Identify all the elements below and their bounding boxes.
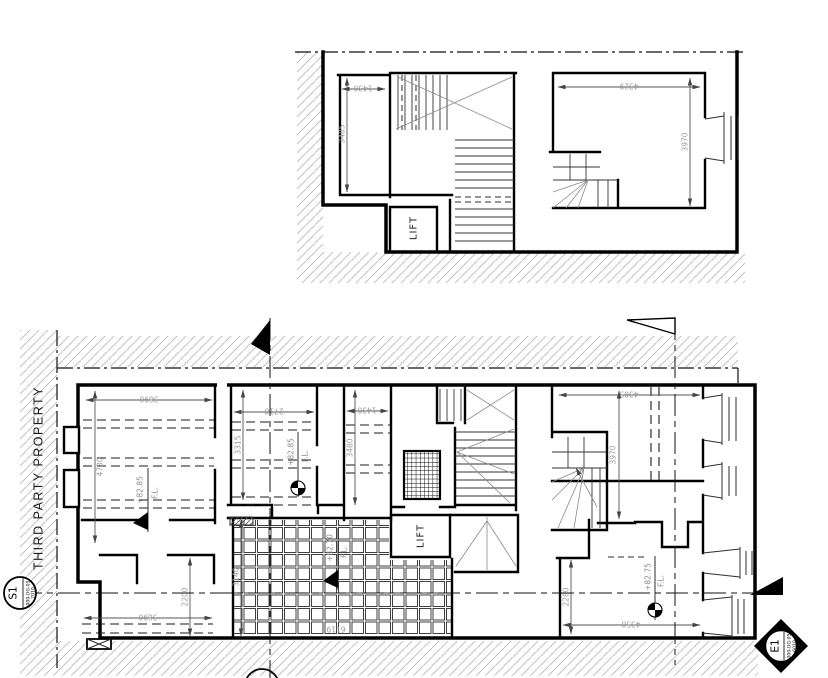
lintel-hatched-block xyxy=(230,517,253,525)
hatch-upper-bottom xyxy=(297,252,745,283)
marker-s1: S1 000-DG-05 7010 xyxy=(4,577,37,609)
hatch-lower-bottom xyxy=(57,641,758,676)
wall-opening xyxy=(217,381,227,389)
level-suffix: F.L. xyxy=(657,575,666,587)
level-benchmark-icon xyxy=(291,481,305,495)
level-suffix: F.L. xyxy=(340,546,349,558)
s1-sheet: 7010 xyxy=(31,587,37,599)
level-suffix: F.L. xyxy=(151,487,160,499)
floor-plan-drawing: LIFT 1430 3485 4329 3970 LIFT xyxy=(0,0,828,678)
dim-label: 3315 xyxy=(234,435,243,454)
level-value: +82.85 xyxy=(136,476,145,504)
pilaster xyxy=(64,470,79,507)
level-value: +82.85 xyxy=(287,438,296,466)
e1-code: 000-DG-05 xyxy=(787,633,793,658)
dim-label: 4329 xyxy=(619,81,638,90)
dim-label: 4730 xyxy=(96,457,105,476)
dim-label: 3690 xyxy=(138,612,157,621)
dim-label: 3480 xyxy=(346,438,355,457)
hatch-upper-left xyxy=(297,52,323,252)
lift-label: LIFT xyxy=(409,216,420,240)
dim-label: 3690 xyxy=(139,394,158,403)
dim-label: 3485 xyxy=(338,124,347,143)
dim-label: 2710 xyxy=(264,406,283,415)
pilaster xyxy=(64,427,79,453)
dim-label: 6119 xyxy=(326,624,345,633)
s1-label: S1 xyxy=(8,586,20,599)
dim-label: 3140 xyxy=(232,567,241,586)
lift-label: LIFT xyxy=(416,524,427,548)
dim-label: 3970 xyxy=(609,445,618,464)
e1-label: E1 xyxy=(770,639,782,652)
dim-label: 2200 xyxy=(181,587,190,606)
third-party-property-label: THIRD PARTY PROPERTY xyxy=(31,386,45,570)
e1-sheet: 6010 xyxy=(792,640,798,652)
dim-label: 1430 xyxy=(353,83,372,92)
dim-label: 4305 xyxy=(619,389,638,398)
dim-label: 1430 xyxy=(357,405,376,414)
level-benchmark-icon xyxy=(648,603,662,617)
hatch-lower-top xyxy=(57,336,738,367)
level-value: +82.70 xyxy=(326,534,335,562)
drawing-canvas: LIFT 1430 3485 4329 3970 LIFT xyxy=(0,0,828,678)
lift-shaft-hatched xyxy=(404,451,440,499)
level-value: +82.75 xyxy=(644,563,653,591)
dim-label: 2280 xyxy=(562,587,571,606)
dim-label: 3970 xyxy=(681,132,690,151)
dim-label: 4350 xyxy=(621,619,640,628)
level-suffix: F.L. xyxy=(301,450,310,462)
